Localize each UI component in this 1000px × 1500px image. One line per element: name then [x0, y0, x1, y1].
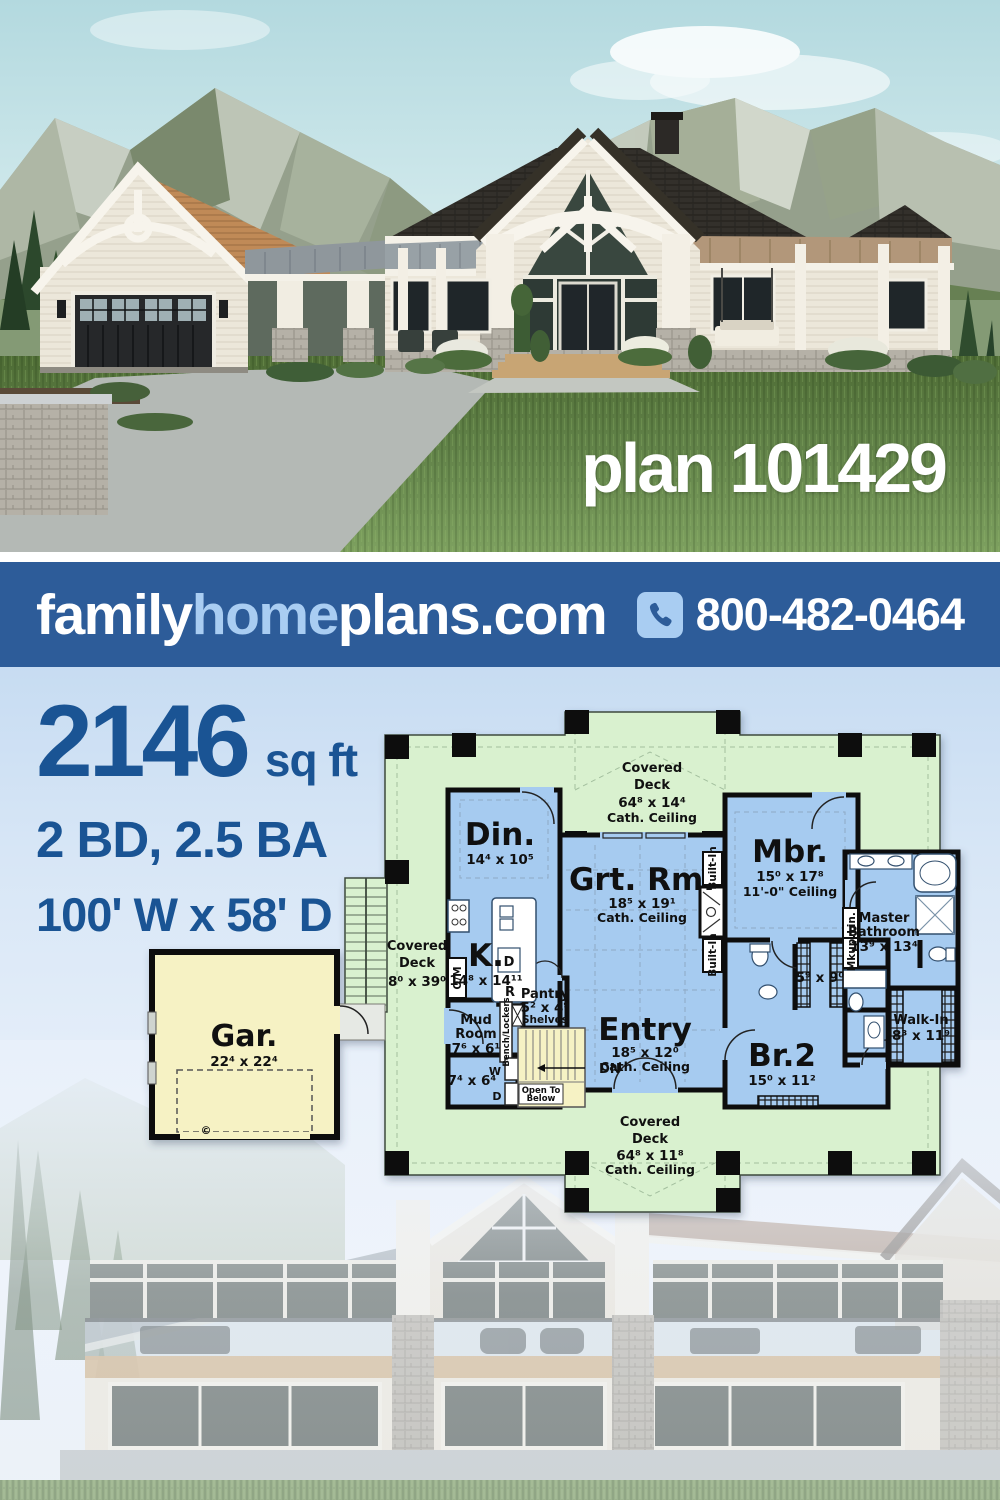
linen-label: Lin.	[846, 912, 858, 934]
svg-text:8⁰ x 39⁰: 8⁰ x 39⁰	[388, 974, 446, 990]
bed2-label: Br.2	[748, 1038, 816, 1074]
svg-text:Deck: Deck	[399, 956, 435, 971]
great-room-label: Grt. Rm.	[569, 862, 715, 898]
dn-label: DN	[599, 1062, 621, 1077]
built-in-bottom: Built-In	[707, 933, 719, 976]
svg-text:Room: Room	[455, 1027, 496, 1042]
deck-top-label: Covered	[622, 761, 682, 776]
garage-label: Gar.	[211, 1019, 278, 1054]
svg-text:11'-0" Ceiling: 11'-0" Ceiling	[743, 884, 837, 899]
mud-room-label: Mud	[460, 1013, 492, 1028]
deck-bottom-label: Covered	[620, 1115, 680, 1130]
svg-text:15⁰ x 11²: 15⁰ x 11²	[748, 1073, 816, 1089]
svg-text:8³ x 11⁹: 8³ x 11⁹	[892, 1028, 950, 1044]
makeup-label: Mkup.	[846, 935, 858, 971]
hall-dims: 5⁹ x 9⁰	[796, 970, 845, 986]
svg-text:Shelves: Shelves	[522, 1014, 568, 1026]
plan-number: plan 101429	[581, 428, 945, 508]
oven-micro-label: O/M	[452, 966, 464, 989]
chimney	[655, 116, 679, 154]
svg-text:22⁴ x 22⁴: 22⁴ x 22⁴	[210, 1054, 278, 1070]
svg-text:Deck: Deck	[634, 778, 670, 793]
svg-text:64⁸ x 14⁴: 64⁸ x 14⁴	[618, 795, 686, 811]
phone-contact[interactable]: 800-482-0464	[637, 589, 964, 641]
deck-left-label: Covered	[387, 939, 447, 954]
svg-text:15⁰ x 17⁸: 15⁰ x 17⁸	[756, 869, 824, 885]
dining-label: Din.	[465, 817, 535, 853]
logo-plans: plans.com	[338, 583, 606, 647]
svg-text:Below: Below	[527, 1094, 556, 1104]
svg-text:13⁹ x 13⁴: 13⁹ x 13⁴	[850, 939, 918, 955]
svg-text:Bathroom: Bathroom	[848, 925, 920, 940]
svg-text:Deck: Deck	[632, 1132, 668, 1147]
logo-home: home	[192, 583, 338, 647]
floor-plan: Covered Deck 64⁸ x 14⁴ Cath. Ceiling Cov…	[0, 672, 1000, 1232]
copyright-mark: ©	[201, 1124, 212, 1137]
garage-lamp-left	[57, 300, 66, 318]
phone-icon	[637, 592, 683, 638]
garage-walkway	[337, 1004, 385, 1040]
garage-lamp-right	[219, 300, 228, 318]
brand-banner: familyhomeplans.com 800-482-0464	[0, 562, 1000, 667]
house-plan-pin: plan 101429 familyhomeplans.com 800-482-…	[0, 0, 1000, 1500]
master-label: Mbr.	[752, 834, 828, 870]
dishwasher-label: D	[504, 955, 515, 970]
svg-text:7⁶ x 6¹: 7⁶ x 6¹	[452, 1041, 501, 1057]
phone-number: 800-482-0464	[696, 589, 964, 641]
master-bath-label: Master	[859, 911, 910, 926]
svg-text:Cath. Ceiling: Cath. Ceiling	[607, 810, 697, 825]
logo-family: family	[36, 583, 192, 647]
washer-label: W	[489, 1065, 501, 1078]
bench-lockers-label: Bench/Lockers	[502, 997, 512, 1066]
walkin-label: Walk-In	[893, 1013, 948, 1028]
kitchen-label: K.	[468, 938, 504, 974]
svg-text:Cath. Ceiling: Cath. Ceiling	[597, 910, 687, 925]
dryer-label: D	[492, 1090, 501, 1103]
entry-label: Entry	[598, 1012, 692, 1048]
porch-roof-right	[690, 236, 952, 266]
fridge-label: R	[505, 985, 515, 1000]
site-logo[interactable]: familyhomeplans.com	[36, 582, 606, 648]
svg-text:14⁴ x 10⁵: 14⁴ x 10⁵	[466, 852, 534, 868]
front-elevation-photo: plan 101429	[0, 0, 1000, 552]
svg-text:Cath. Ceiling: Cath. Ceiling	[605, 1162, 695, 1177]
built-in-top: Built-In	[707, 846, 719, 889]
